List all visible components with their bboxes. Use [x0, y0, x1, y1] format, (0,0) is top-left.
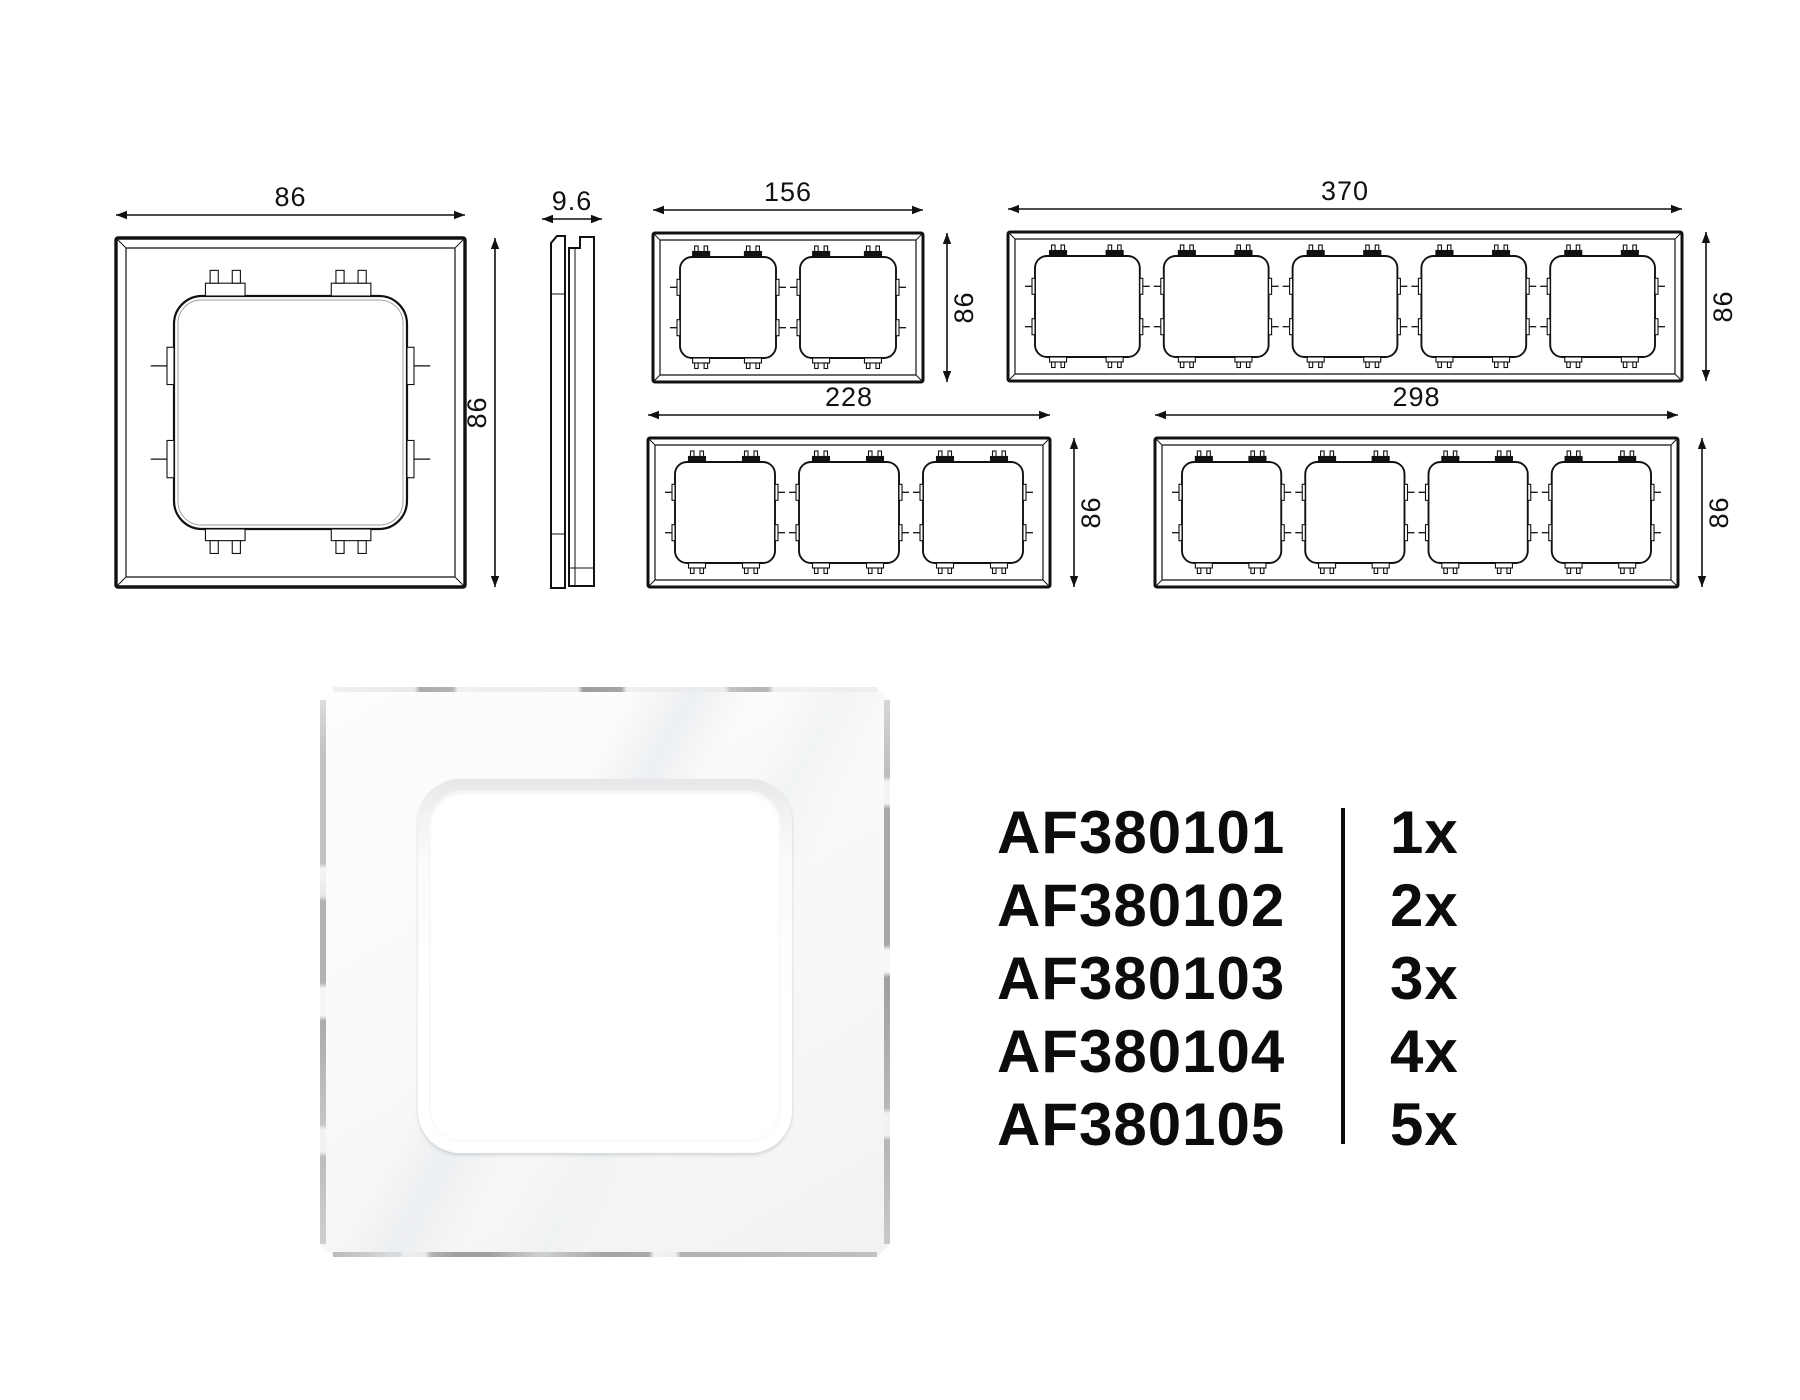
svg-text:86: 86 [274, 182, 306, 212]
technical-drawings: 86869.615686370862288629886 [0, 0, 1800, 640]
svg-text:370: 370 [1321, 176, 1369, 206]
product-quantity: 3x [1390, 942, 1459, 1015]
svg-text:86: 86 [1704, 496, 1734, 528]
product-quantity: 2x [1390, 869, 1459, 942]
frame-spec-sheet: 86869.615686370862288629886 AF380101 AF3… [0, 0, 1800, 1400]
product-code: AF380105 [997, 1088, 1285, 1161]
product-quantity: 4x [1390, 1015, 1459, 1088]
svg-text:86: 86 [1076, 496, 1106, 528]
product-quantity: 1x [1390, 796, 1459, 869]
svg-text:298: 298 [1392, 382, 1440, 412]
drawing-five-gang-frame: 37086 [1008, 176, 1738, 381]
svg-text:9.6: 9.6 [552, 186, 593, 216]
svg-text:86: 86 [1708, 290, 1738, 322]
svg-text:86: 86 [462, 396, 492, 428]
product-quantity: 5x [1390, 1088, 1459, 1161]
render-module-opening [418, 779, 792, 1153]
svg-text:156: 156 [764, 177, 812, 207]
product-code-column: AF380101 AF380102 AF380103 AF380104 AF38… [997, 796, 1285, 1161]
drawing-two-gang-frame: 15686 [653, 177, 979, 382]
product-code: AF380103 [997, 942, 1285, 1015]
svg-text:228: 228 [825, 382, 873, 412]
product-code: AF380101 [997, 796, 1285, 869]
drawing-single-frame-front: 8686 [116, 182, 499, 587]
render-opening-inner [429, 790, 781, 1142]
product-code: AF380102 [997, 869, 1285, 942]
drawing-four-gang-frame: 29886 [1155, 382, 1734, 587]
table-divider [1341, 808, 1345, 1144]
drawing-three-gang-frame: 22886 [648, 382, 1106, 587]
svg-text:86: 86 [949, 291, 979, 323]
product-quantity-column: 1x 2x 3x 4x 5x [1390, 796, 1459, 1161]
product-render [320, 687, 890, 1257]
product-code: AF380104 [997, 1015, 1285, 1088]
drawing-side-profile: 9.6 [542, 186, 602, 588]
